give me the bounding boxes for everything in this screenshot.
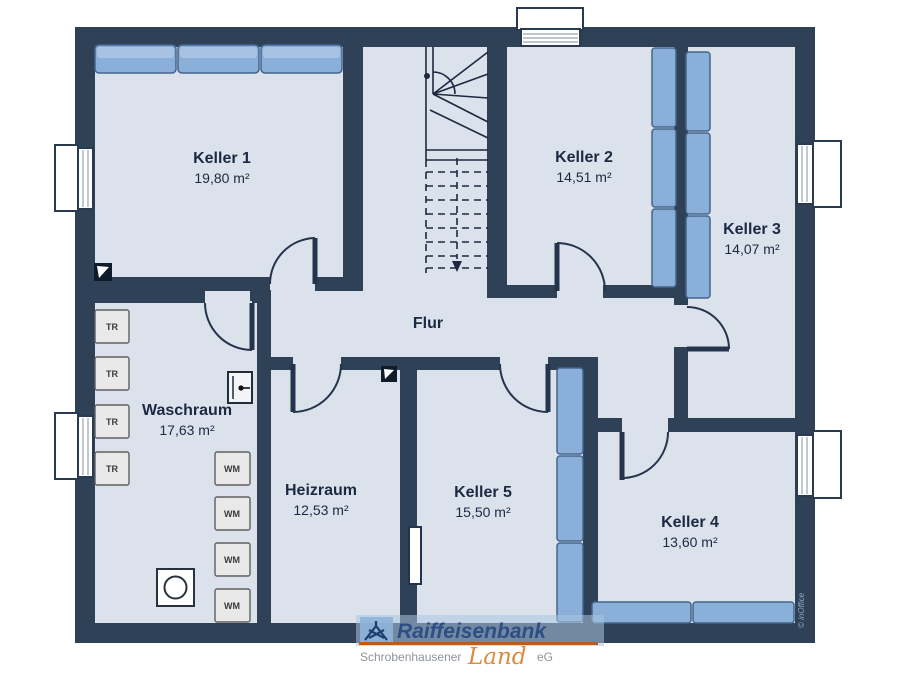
window-right-keller4 [797,431,841,498]
label-keller1-name: Keller 1 [193,150,251,167]
label-keller5-name: Keller 5 [454,484,512,501]
label-flur: Flur [413,315,443,332]
washer-label: WM [224,555,240,565]
window-top-keller2 [517,8,583,46]
label-keller4-area: 13,60 m² [662,534,718,550]
window-right-keller3 [797,141,841,207]
washer-label: WM [224,509,240,519]
dryer-label: TR [106,464,118,474]
label-keller2-area: 14,51 m² [556,169,612,185]
window-left-keller1 [55,145,93,211]
dryer-label: TR [106,417,118,427]
dryer-label: TR [106,322,118,332]
label-keller1-area: 19,80 m² [194,170,250,186]
label-waschraum-name: Waschraum [142,402,232,419]
bank-sub-script-text: Land [467,644,527,670]
shelf-keller3 [686,52,710,298]
washer-label: WM [224,464,240,474]
window-left-waschraum [55,413,93,479]
label-waschraum-area: 17,63 m² [159,422,215,438]
floor-plan-svg: TR TR TR TR WM WM WM WM [0,0,902,680]
floor-drain-sink [157,569,194,606]
bank-sub-left-text: Schrobenhausener [360,650,461,664]
floorplan-canvas: TR TR TR TR WM WM WM WM [0,0,902,680]
label-keller2-name: Keller 2 [555,149,613,166]
shelf-keller2 [652,48,676,287]
label-keller5-area: 15,50 m² [455,504,511,520]
sofa-keller4 [592,602,794,623]
vent-icon-keller1 [94,263,112,281]
label-keller3-area: 14,07 m² [724,241,780,257]
sofa-keller1 [95,45,342,73]
chimney-duct [409,527,421,584]
washer-label: WM [224,601,240,611]
bank-sub-right-text: eG [537,650,553,664]
shelf-keller5 [557,368,583,622]
label-heizraum-name: Heizraum [285,482,357,499]
label-keller4-name: Keller 4 [661,514,719,531]
label-keller3-name: Keller 3 [723,221,781,238]
meter-box [228,372,252,403]
label-heizraum-area: 12,53 m² [293,502,349,518]
vent-icon-heizraum [381,366,397,382]
bank-watermark: Raiffeisenbank Schrobenhausener Land eG [356,615,604,670]
bank-name-text: Raiffeisenbank [397,620,547,643]
software-watermark: © inOffice [797,592,806,628]
dryer-label: TR [106,369,118,379]
